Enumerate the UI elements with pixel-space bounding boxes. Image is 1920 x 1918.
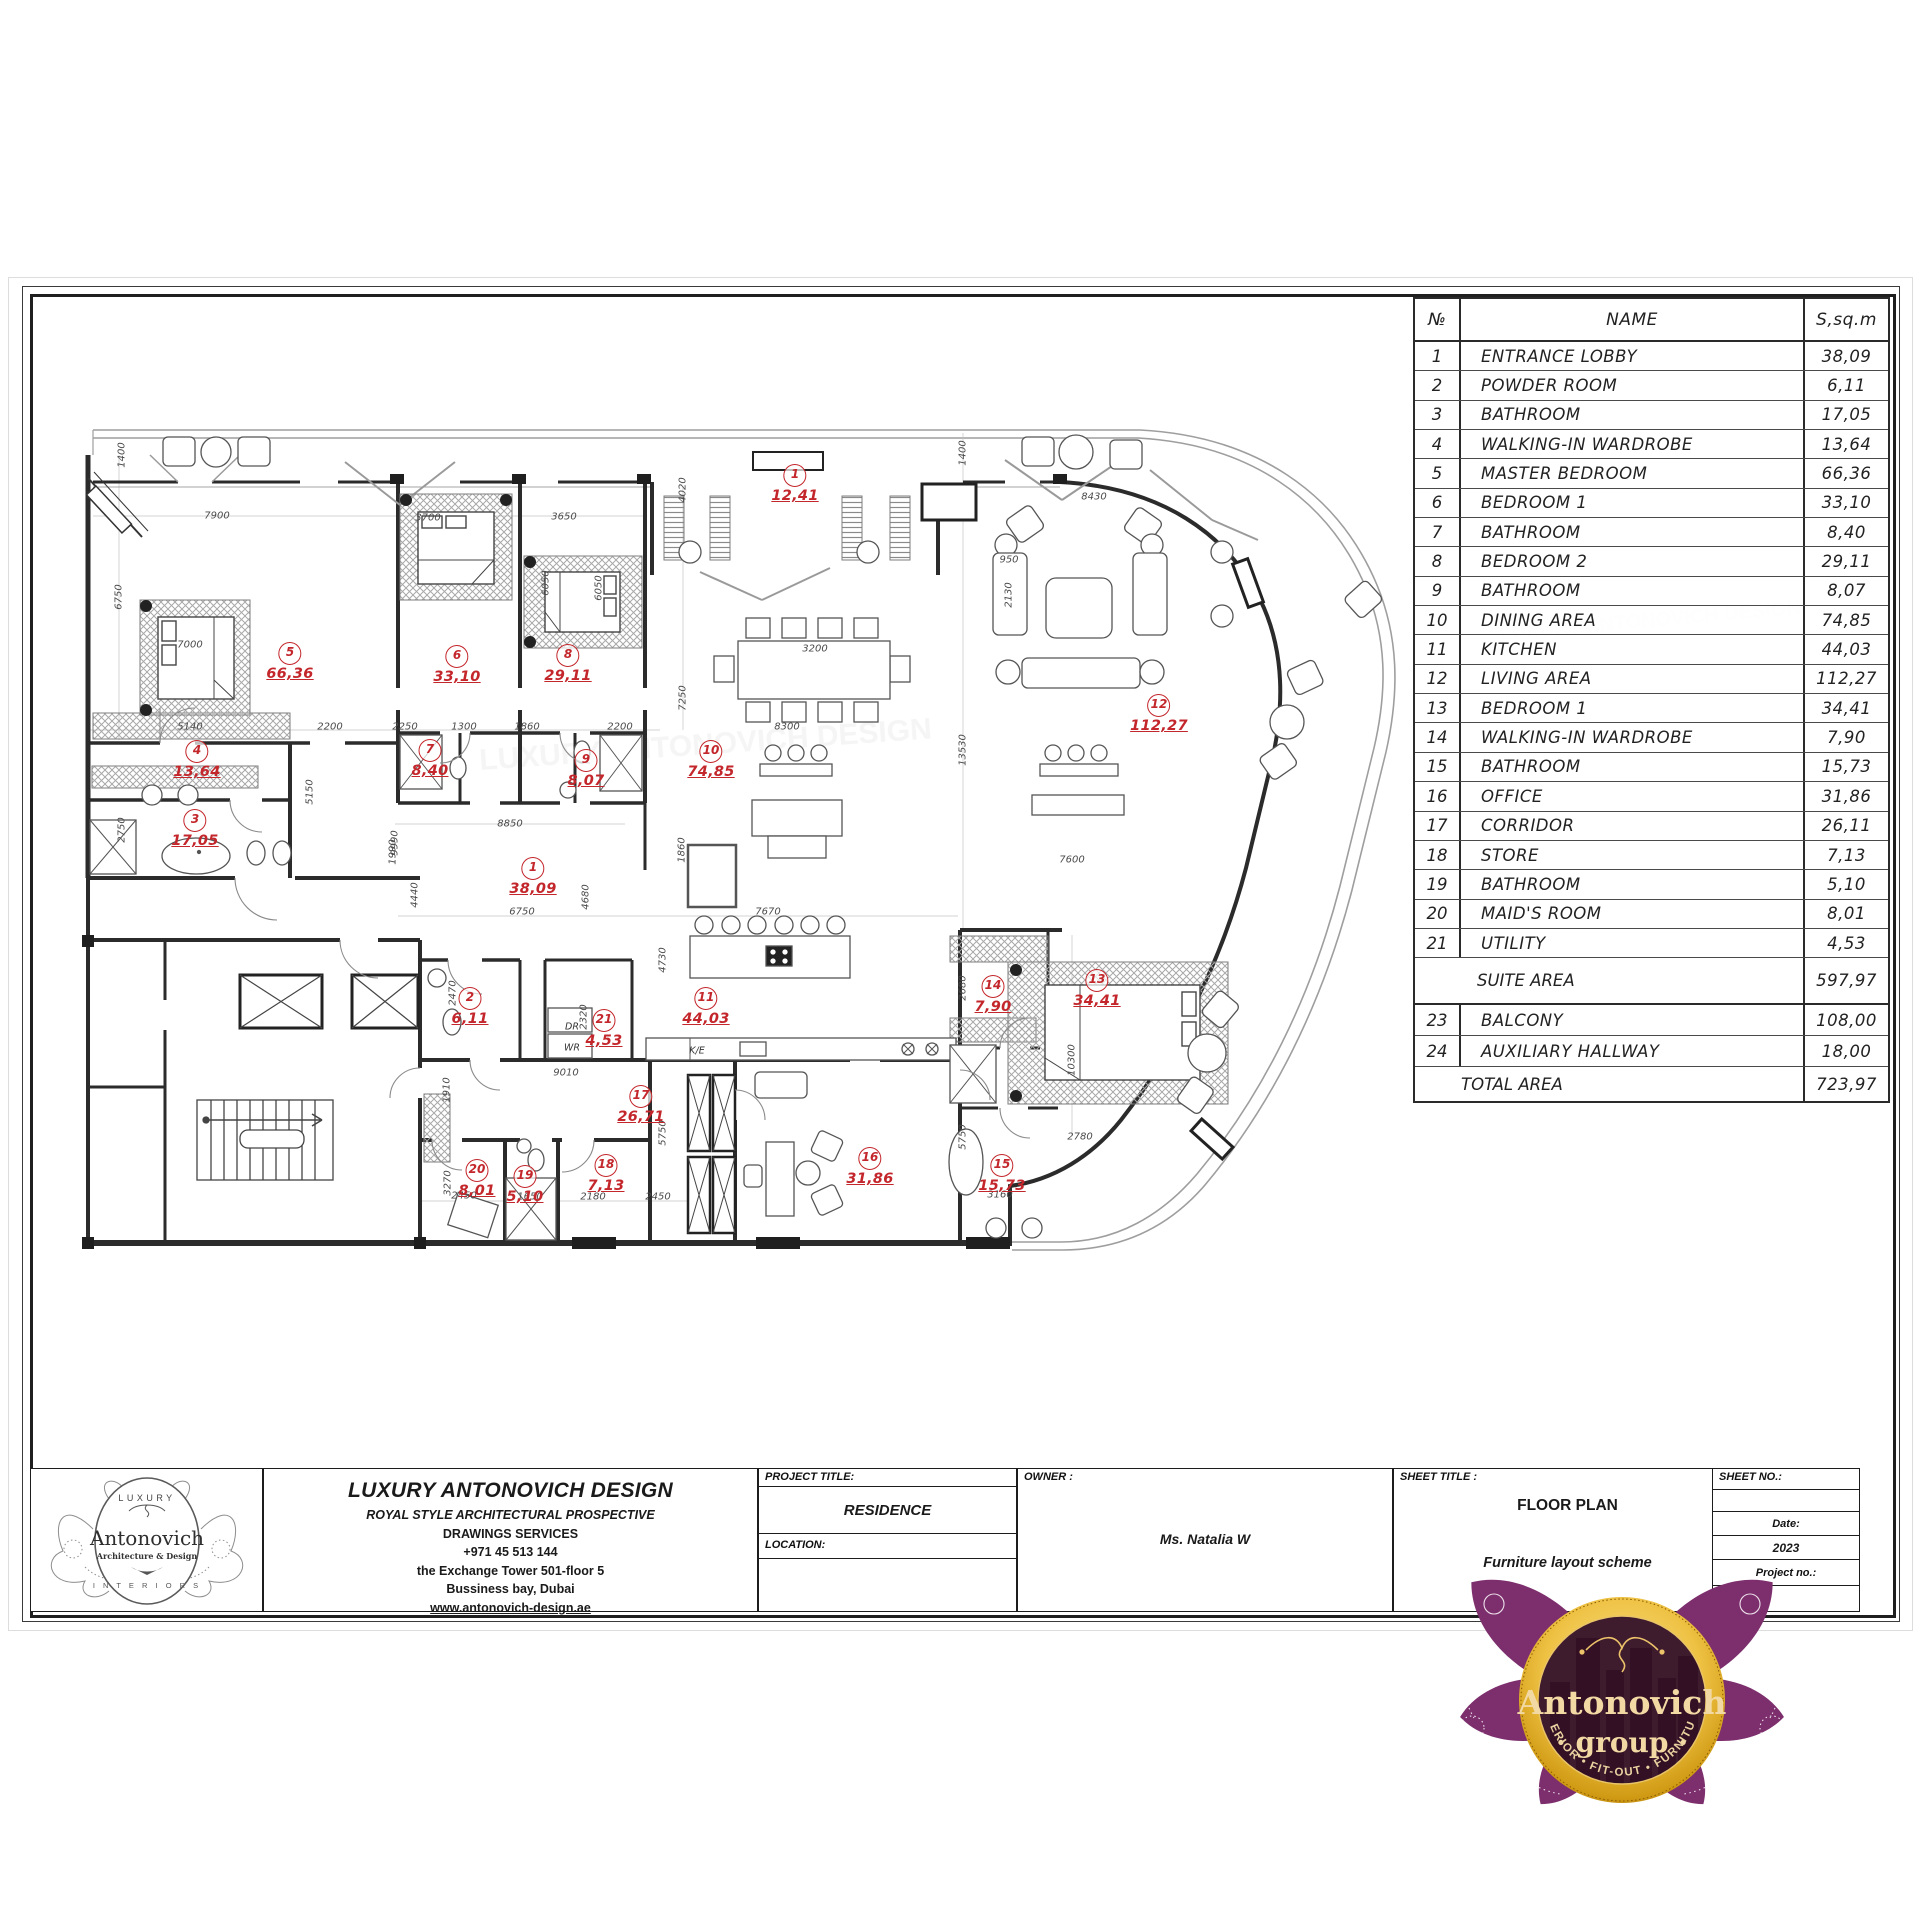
location-value xyxy=(759,1561,1016,1611)
room-label-area: 33,10 xyxy=(433,670,480,685)
room-name: MAID'S ROOM xyxy=(1461,900,1805,928)
room-label: 18 7,13 xyxy=(588,1154,625,1194)
company-address2: Bussiness bay, Dubai xyxy=(264,1580,757,1599)
room-label-number: 14 xyxy=(981,975,1004,998)
room-label-area: 8,40 xyxy=(412,764,449,779)
table-row: 1 ENTRANCE LOBBY 38,09 xyxy=(1415,342,1888,371)
room-no: 14 xyxy=(1415,723,1461,751)
table-row: 2 POWDER ROOM 6,11 xyxy=(1415,371,1888,400)
lotus-petals: Antonovich · group · INTERIOR • FIT-OUT … xyxy=(1449,1568,1795,1820)
dimension-text: 3270 xyxy=(443,1170,454,1195)
room-name: LIVING AREA xyxy=(1461,665,1805,693)
dimension-text: 2250 xyxy=(392,722,417,733)
dimension-text: 4730 xyxy=(658,947,669,972)
owner-value: Ms. Natalia W xyxy=(1018,1531,1392,1547)
room-no: 18 xyxy=(1415,841,1461,869)
room-label-area: 112,27 xyxy=(1130,719,1188,734)
room-label: 2 6,11 xyxy=(452,987,489,1027)
room-name: WALKING-IN WARDROBE xyxy=(1461,723,1805,751)
dimension-text: 8300 xyxy=(774,722,799,733)
room-no: 23 xyxy=(1415,1005,1461,1035)
table-row: 3 BATHROOM 17,05 xyxy=(1415,401,1888,430)
room-area: 29,11 xyxy=(1805,547,1888,575)
room-area: 26,11 xyxy=(1805,812,1888,840)
suite-area-label: SUITE AREA xyxy=(1415,958,1805,1003)
room-no: 10 xyxy=(1415,606,1461,634)
room-no: 15 xyxy=(1415,753,1461,781)
room-label-area: 34,41 xyxy=(1073,994,1120,1009)
lotus-logo-sub: Architecture & Design xyxy=(96,1551,198,1561)
room-no: 3 xyxy=(1415,401,1461,429)
room-no: 4 xyxy=(1415,430,1461,458)
room-label-number: 8 xyxy=(557,644,580,667)
room-no: 16 xyxy=(1415,782,1461,810)
room-label: 6 33,10 xyxy=(433,645,480,685)
room-label-area: 13,64 xyxy=(173,765,220,780)
room-area: 33,10 xyxy=(1805,489,1888,517)
group-logo-name: Antonovich xyxy=(1517,1683,1727,1722)
company-info: LUXURY ANTONOVICH DESIGN ROYAL STYLE ARC… xyxy=(263,1468,758,1612)
dimension-text: 1990 xyxy=(388,839,399,864)
plan-annotation: WR xyxy=(564,1043,580,1054)
owner-cell: OWNER : Ms. Natalia W xyxy=(1017,1468,1393,1612)
room-label: 20 8,01 xyxy=(459,1159,496,1199)
room-area: 8,01 xyxy=(1805,900,1888,928)
living-furniture xyxy=(993,504,1233,815)
table-row: 13 BEDROOM 1 34,41 xyxy=(1415,694,1888,723)
room-no: 19 xyxy=(1415,870,1461,898)
room-area: 31,86 xyxy=(1805,782,1888,810)
room-no: 2 xyxy=(1415,371,1461,399)
room-label-number: 16 xyxy=(859,1147,882,1170)
room-no: 9 xyxy=(1415,577,1461,605)
room-no: 8 xyxy=(1415,547,1461,575)
company-name: LUXURY ANTONOVICH DESIGN xyxy=(264,1475,757,1506)
room-label-number: 1 xyxy=(522,857,545,880)
room-label: 8 29,11 xyxy=(544,644,591,684)
room-name: BEDROOM 1 xyxy=(1461,694,1805,722)
total-area-label: TOTAL AREA xyxy=(1415,1067,1805,1101)
room-label-area: 7,90 xyxy=(975,1000,1012,1015)
project-title-value: RESIDENCE xyxy=(759,1488,1016,1534)
antonovich-group-logo: Antonovich · group · INTERIOR • FIT-OUT … xyxy=(1415,1568,1825,1848)
room-label-number: 17 xyxy=(630,1085,653,1108)
table-row: 20 MAID'S ROOM 8,01 xyxy=(1415,900,1888,929)
room-schedule-table: № NAME S,sq.m 1 ENTRANCE LOBBY 38,09 2 P… xyxy=(1413,297,1890,1103)
room-label: 12 112,27 xyxy=(1130,694,1188,734)
room-label-number: 7 xyxy=(418,739,441,762)
room-label-area: 4,53 xyxy=(586,1034,623,1049)
room-label: 16 31,86 xyxy=(846,1147,893,1187)
table-row: 10 DINING AREA 74,85 xyxy=(1415,606,1888,635)
room-label-number: 18 xyxy=(594,1154,617,1177)
dimension-text: 2200 xyxy=(317,722,342,733)
room-name: BATHROOM xyxy=(1461,401,1805,429)
room-name: BATHROOM xyxy=(1461,870,1805,898)
room-label: 19 5,10 xyxy=(507,1165,544,1205)
table-row: 5 MASTER BEDROOM 66,36 xyxy=(1415,459,1888,488)
room-no: 24 xyxy=(1415,1036,1461,1066)
room-label-number: 6 xyxy=(446,645,469,668)
room-no: 17 xyxy=(1415,812,1461,840)
table-row: 11 KITCHEN 44,03 xyxy=(1415,635,1888,664)
dimension-text: 5150 xyxy=(305,779,316,804)
project-title-label: PROJECT TITLE: xyxy=(759,1469,1016,1487)
table-row: 24 AUXILIARY HALLWAY 18,00 xyxy=(1415,1036,1888,1067)
dimension-text: 4440 xyxy=(410,882,421,907)
room-area: 13,64 xyxy=(1805,430,1888,458)
room-area: 34,41 xyxy=(1805,694,1888,722)
table-row: 15 BATHROOM 15,73 xyxy=(1415,753,1888,782)
room-label: 13 34,41 xyxy=(1073,969,1120,1009)
room-area: 74,85 xyxy=(1805,606,1888,634)
room-label: 5 66,36 xyxy=(266,642,313,682)
room-label: 9 8,07 xyxy=(568,749,605,789)
room-label: 10 74,85 xyxy=(687,740,734,780)
room-label-area: 29,11 xyxy=(544,669,591,684)
room-name: BEDROOM 1 xyxy=(1461,489,1805,517)
room-no: 13 xyxy=(1415,694,1461,722)
room-label: 17 26,71 xyxy=(617,1085,664,1125)
room-label-number: 4 xyxy=(186,740,209,763)
dimension-text: 2200 xyxy=(607,722,632,733)
suite-area-row: SUITE AREA 597,97 xyxy=(1415,958,1888,1005)
dimension-text: 4680 xyxy=(581,884,592,909)
col-header-name: NAME xyxy=(1461,299,1805,340)
room-area: 15,73 xyxy=(1805,753,1888,781)
room-label-number: 21 xyxy=(592,1009,615,1032)
col-header-area: S,sq.m xyxy=(1805,299,1888,340)
table-row: 12 LIVING AREA 112,27 xyxy=(1415,665,1888,694)
sheet-title-value: FLOOR PLAN xyxy=(1394,1497,1741,1515)
dimension-text: 7600 xyxy=(1059,855,1084,866)
table-row: 16 OFFICE 31,86 xyxy=(1415,782,1888,811)
room-area: 112,27 xyxy=(1805,665,1888,693)
room-label-number: 15 xyxy=(991,1154,1014,1177)
dimension-text: 1300 xyxy=(451,722,476,733)
room-label-area: 26,71 xyxy=(617,1110,664,1125)
room-label-number: 19 xyxy=(513,1165,536,1188)
room-label-number: 3 xyxy=(184,809,207,832)
room-label-area: 38,09 xyxy=(509,882,556,897)
room-no: 20 xyxy=(1415,900,1461,928)
dimension-text: 8850 xyxy=(497,819,522,830)
dimension-text: 1910 xyxy=(442,1077,453,1102)
table-row: 23 BALCONY 108,00 xyxy=(1415,1005,1888,1036)
dimension-text: 1860 xyxy=(514,722,539,733)
sheet-no-label: SHEET NO.: xyxy=(1713,1469,1859,1490)
room-label-area: 8,01 xyxy=(459,1184,496,1199)
total-area-row: TOTAL AREA 723,97 xyxy=(1415,1067,1888,1101)
room-label-area: 12,41 xyxy=(771,489,818,504)
table-row: 18 STORE 7,13 xyxy=(1415,841,1888,870)
owner-label: OWNER : xyxy=(1018,1469,1392,1483)
room-label-number: 12 xyxy=(1147,694,1170,717)
dimension-text: 6050 xyxy=(541,570,552,595)
room-area: 5,10 xyxy=(1805,870,1888,898)
lotus-logo-name: Antonovich xyxy=(89,1526,204,1550)
table-header-row: № NAME S,sq.m xyxy=(1415,299,1888,342)
room-area: 38,09 xyxy=(1805,342,1888,370)
dimension-text: 1400 xyxy=(117,442,128,467)
room-label: 7 8,40 xyxy=(412,739,449,779)
dimension-text: 8430 xyxy=(1081,492,1106,503)
room-name: BATHROOM xyxy=(1461,518,1805,546)
room-label-area: 15,73 xyxy=(978,1179,1025,1194)
room-no: 12 xyxy=(1415,665,1461,693)
room-area: 4,53 xyxy=(1805,929,1888,957)
project-title-cell: PROJECT TITLE: RESIDENCE LOCATION: xyxy=(758,1468,1017,1612)
lotus-logo-top: LUXURY xyxy=(118,1493,175,1503)
room-label-area: 6,11 xyxy=(452,1012,489,1027)
room-label-number: 10 xyxy=(700,740,723,763)
sheet-no-value xyxy=(1713,1491,1859,1512)
room-no: 21 xyxy=(1415,929,1461,957)
room-label-area: 8,07 xyxy=(568,774,605,789)
room-name: BATHROOM xyxy=(1461,577,1805,605)
room-label: 3 17,05 xyxy=(171,809,218,849)
room-label-number: 13 xyxy=(1086,969,1109,992)
room-area: 108,00 xyxy=(1805,1005,1888,1035)
room-area: 44,03 xyxy=(1805,635,1888,663)
table-row: 6 BEDROOM 1 33,10 xyxy=(1415,489,1888,518)
dimension-lines xyxy=(88,433,1072,1201)
office xyxy=(744,1130,844,1217)
room-name: OFFICE xyxy=(1461,782,1805,810)
location-label: LOCATION: xyxy=(759,1535,1016,1559)
dimension-text: 2680 xyxy=(958,975,969,1000)
col-header-no: № xyxy=(1415,299,1461,340)
company-line3: DRAWINGS SERVICES xyxy=(264,1525,757,1544)
dimension-text: 2780 xyxy=(1067,1132,1092,1143)
room-area: 8,07 xyxy=(1805,577,1888,605)
table-row: 8 BEDROOM 2 29,11 xyxy=(1415,547,1888,576)
room-name: WALKING-IN WARDROBE xyxy=(1461,430,1805,458)
dimension-text: 1400 xyxy=(958,440,969,465)
company-website: www.antonovich-design.ae xyxy=(264,1599,757,1618)
room-label: 15 15,73 xyxy=(978,1154,1025,1194)
dimension-text: 1860 xyxy=(677,837,688,862)
dimension-text: 950 xyxy=(999,555,1018,566)
sheet-title-label: SHEET TITLE : xyxy=(1394,1469,1741,1483)
company-address1: the Exchange Tower 501-floor 5 xyxy=(264,1562,757,1581)
room-label: 11 44,03 xyxy=(682,987,729,1027)
dimension-text: 10300 xyxy=(1067,1044,1078,1076)
plan-annotation: K/E xyxy=(689,1046,704,1057)
room-area: 8,40 xyxy=(1805,518,1888,546)
room-label-number: 5 xyxy=(279,642,302,665)
room-label: 21 4,53 xyxy=(586,1009,623,1049)
total-area-value: 723,97 xyxy=(1805,1067,1888,1101)
room-label: 4 13,64 xyxy=(173,740,220,780)
room-label-number: 2 xyxy=(458,987,481,1010)
room-label-area: 7,13 xyxy=(588,1179,625,1194)
suite-area-value: 597,97 xyxy=(1805,958,1888,1003)
table-row: 21 UTILITY 4,53 xyxy=(1415,929,1888,958)
dimension-text: 7900 xyxy=(204,511,229,522)
room-name: BALCONY xyxy=(1461,1005,1805,1035)
room-label-number: 11 xyxy=(695,987,718,1010)
dimension-text: 5750 xyxy=(958,1124,969,1149)
dimension-text: 9010 xyxy=(553,1068,578,1079)
room-name: STORE xyxy=(1461,841,1805,869)
lotus-logo-bottom: I N T E R I O R S xyxy=(93,1581,201,1590)
dimension-text: 7670 xyxy=(755,907,780,918)
dimension-text: 7250 xyxy=(678,685,689,710)
room-name: UTILITY xyxy=(1461,929,1805,957)
room-label-area: 31,86 xyxy=(846,1172,893,1187)
date-value: 2023 xyxy=(1713,1537,1859,1560)
room-label-area: 44,03 xyxy=(682,1012,729,1027)
room-name: ENTRANCE LOBBY xyxy=(1461,342,1805,370)
dimension-text: 6750 xyxy=(509,907,534,918)
drawing-sheet: LUXURY ANTONOVICH DESIGN LUXURY ANTONOVI… xyxy=(0,0,1920,1918)
room-label-area: 5,10 xyxy=(507,1190,544,1205)
table-row: 19 BATHROOM 5,10 xyxy=(1415,870,1888,899)
room-name: DINING AREA xyxy=(1461,606,1805,634)
dimension-text: 6750 xyxy=(114,584,125,609)
dimension-text: 2750 xyxy=(117,817,128,842)
room-no: 5 xyxy=(1415,459,1461,487)
room-area: 18,00 xyxy=(1805,1036,1888,1066)
dimension-text: 3700 xyxy=(415,513,440,524)
antonovich-lotus-logo: LUXURY Antonovich Architecture & Design … xyxy=(33,1471,261,1611)
room-name: CORRIDOR xyxy=(1461,812,1805,840)
room-name: BEDROOM 2 xyxy=(1461,547,1805,575)
dimension-text: 13530 xyxy=(958,734,969,766)
room-name: AUXILIARY HALLWAY xyxy=(1461,1036,1805,1066)
dimension-text: 2130 xyxy=(1004,582,1015,607)
room-label-area: 17,05 xyxy=(171,834,218,849)
room-label-area: 66,36 xyxy=(266,667,313,682)
room-label: 14 7,90 xyxy=(975,975,1012,1015)
room-no: 7 xyxy=(1415,518,1461,546)
dimension-text: 6050 xyxy=(594,575,605,600)
dimension-text: 3200 xyxy=(802,644,827,655)
table-row: 14 WALKING-IN WARDROBE 7,90 xyxy=(1415,723,1888,752)
room-label-number: 20 xyxy=(465,1159,488,1182)
dimension-text: 5140 xyxy=(177,722,202,733)
dimension-text: 7000 xyxy=(177,640,202,651)
room-area: 66,36 xyxy=(1805,459,1888,487)
elevators xyxy=(240,975,418,1028)
room-area: 7,90 xyxy=(1805,723,1888,751)
room-name: KITCHEN xyxy=(1461,635,1805,663)
company-line2: ROYAL STYLE ARCHITECTURAL PROSPECTIVE xyxy=(264,1506,757,1525)
room-name: MASTER BEDROOM xyxy=(1461,459,1805,487)
table-row: 17 CORRIDOR 26,11 xyxy=(1415,812,1888,841)
room-no: 6 xyxy=(1415,489,1461,517)
table-row: 4 WALKING-IN WARDROBE 13,64 xyxy=(1415,430,1888,459)
room-area: 17,05 xyxy=(1805,401,1888,429)
shaft-columns xyxy=(688,1075,735,1233)
dimension-text: 2450 xyxy=(645,1192,670,1203)
dimension-text: 4020 xyxy=(678,477,689,502)
dimension-text: 3650 xyxy=(551,512,576,523)
room-no: 11 xyxy=(1415,635,1461,663)
date-label: Date: xyxy=(1713,1513,1859,1536)
room-label: 1 38,09 xyxy=(509,857,556,897)
room-label-number: 1 xyxy=(784,464,807,487)
table-row: 9 BATHROOM 8,07 xyxy=(1415,577,1888,606)
room-name: BATHROOM xyxy=(1461,753,1805,781)
room-label-area: 74,85 xyxy=(687,765,734,780)
table-row: 7 BATHROOM 8,40 xyxy=(1415,518,1888,547)
room-no: 1 xyxy=(1415,342,1461,370)
room-name: POWDER ROOM xyxy=(1461,371,1805,399)
room-area: 7,13 xyxy=(1805,841,1888,869)
company-phone: +971 45 513 144 xyxy=(264,1543,757,1562)
room-label-number: 9 xyxy=(574,749,597,772)
room-label: 1 12,41 xyxy=(771,464,818,504)
room-area: 6,11 xyxy=(1805,371,1888,399)
plan-annotation: DR xyxy=(565,1022,579,1033)
stairs xyxy=(197,1100,333,1180)
